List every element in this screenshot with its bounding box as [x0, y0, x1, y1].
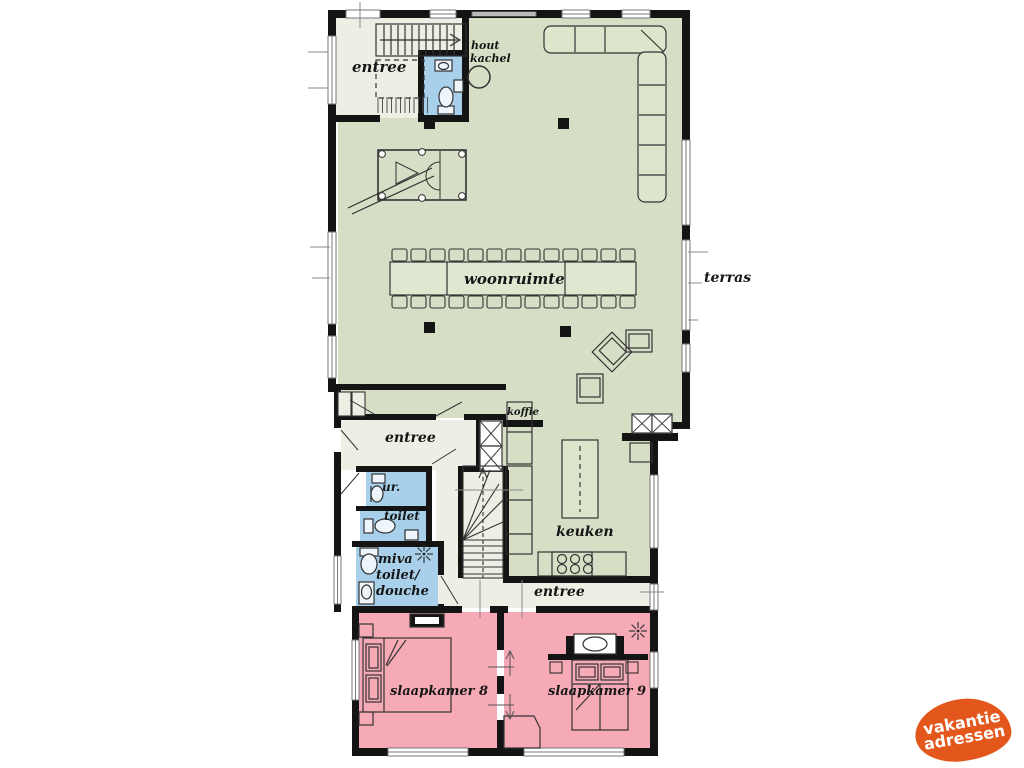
walls	[328, 10, 690, 756]
stairs-mid	[455, 466, 523, 578]
label-slaapkamer-8: slaapkamer 8	[390, 684, 488, 699]
wardrobe	[504, 716, 540, 748]
armchairs	[577, 330, 652, 403]
label-ur: ur.	[382, 480, 400, 494]
billiard-table	[348, 149, 466, 214]
label-miva-1: miva	[378, 552, 413, 567]
corner-sofa	[544, 26, 666, 202]
floorplan-linework	[0, 0, 1024, 768]
floorplan-canvas: entree hout kachel woonruimte terras kof…	[0, 0, 1024, 768]
label-terras: terras	[704, 270, 751, 286]
bed-8	[359, 614, 451, 725]
label-miva-2: toilet/	[376, 568, 420, 583]
wood-stove-icon	[468, 66, 490, 88]
label-entree-low: entree	[534, 584, 585, 600]
label-toilet: toilet	[384, 509, 420, 523]
shower-stars	[415, 545, 647, 640]
label-hout-2: kachel	[470, 52, 511, 65]
label-slaapkamer-9: slaapkamer 9	[548, 684, 646, 699]
label-keuken: keuken	[556, 524, 614, 540]
label-entree-mid: entree	[385, 430, 436, 446]
label-miva-3: douche	[376, 584, 429, 599]
label-hout-1: hout	[471, 39, 499, 52]
kitchen-fixtures	[506, 402, 652, 576]
windows	[328, 10, 690, 756]
locker-boxes	[338, 392, 365, 416]
logo-text: vakantie adressen	[920, 708, 1006, 752]
label-woonruimte: woonruimte	[464, 270, 565, 288]
label-koffie: koffie	[507, 407, 539, 418]
label-entree-top: entree	[352, 58, 406, 76]
wc-top-fixtures	[435, 60, 463, 114]
